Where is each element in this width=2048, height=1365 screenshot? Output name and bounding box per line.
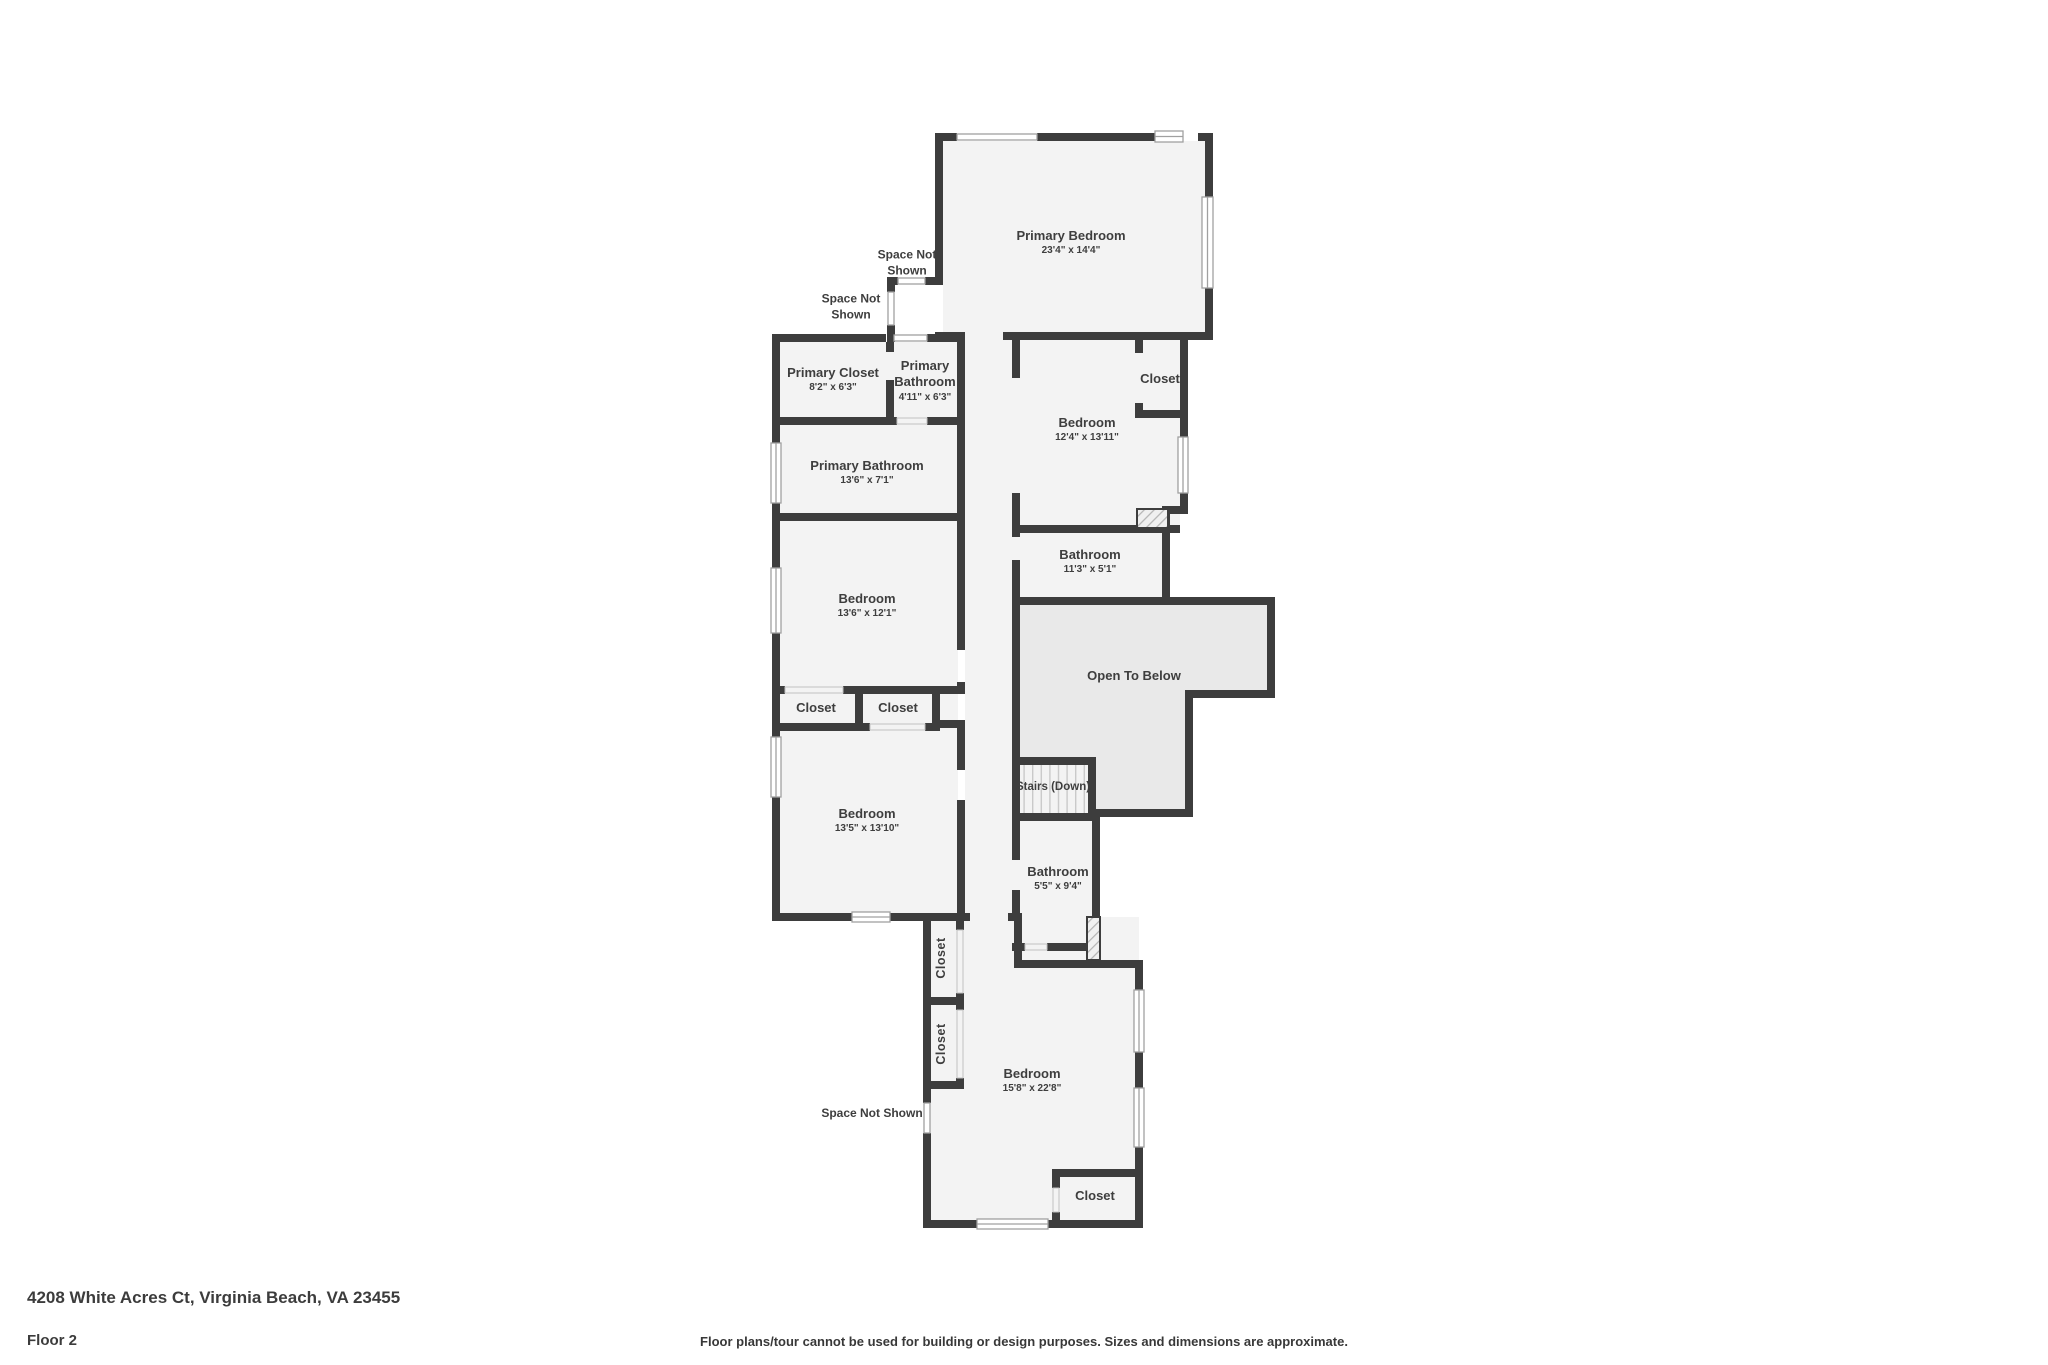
floorplan-drawing	[0, 0, 2048, 1365]
disclaimer-text: Floor plans/tour cannot be used for buil…	[0, 1334, 2048, 1349]
stairs-treads	[1018, 765, 1090, 813]
floorplan-page: Primary Bedroom23'4" x 14'4"Primary Clos…	[0, 0, 2048, 1365]
property-address: 4208 White Acres Ct, Virginia Beach, VA …	[27, 1288, 400, 1308]
